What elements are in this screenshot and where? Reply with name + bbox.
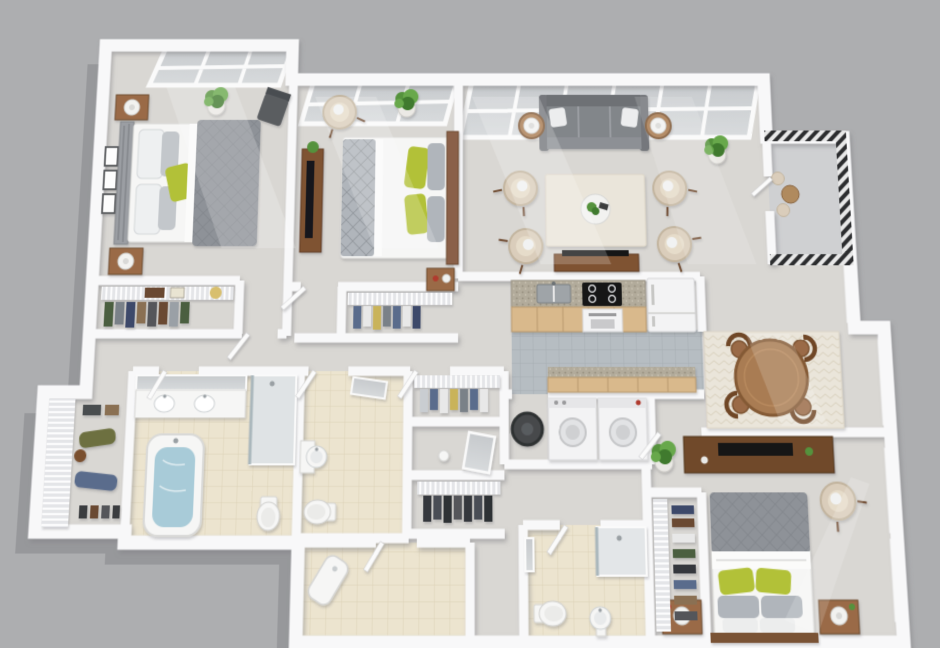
lower-counter bbox=[548, 367, 696, 392]
hanging-clothes bbox=[420, 389, 488, 413]
sink bbox=[537, 282, 571, 303]
nightstand bbox=[115, 95, 149, 120]
table-lamp bbox=[117, 253, 134, 269]
dryer bbox=[598, 398, 648, 460]
tv bbox=[718, 443, 793, 456]
bathtub bbox=[143, 434, 204, 536]
table-lamp bbox=[124, 100, 140, 115]
floor-plan: 3D isometric floor plan render of a thre… bbox=[0, 4, 940, 648]
wire-shelf bbox=[414, 375, 500, 388]
tv-console bbox=[300, 141, 324, 252]
green-pillow bbox=[717, 567, 755, 595]
nightstand bbox=[108, 248, 143, 274]
headboard bbox=[710, 633, 818, 643]
mirror bbox=[525, 538, 533, 571]
scene: 3D isometric floor plan render of a thre… bbox=[0, 0, 940, 648]
bistro-chair bbox=[777, 204, 790, 217]
bistro-table bbox=[781, 185, 799, 203]
closet-bedroom-3 bbox=[653, 499, 698, 632]
floor-plan-render: 3D isometric floor plan render of a thre… bbox=[0, 4, 940, 648]
balcony-railing-bottom bbox=[770, 254, 853, 265]
throw-pillow bbox=[548, 107, 567, 127]
hanging-clothes-dark bbox=[423, 496, 492, 523]
upper-counter bbox=[511, 280, 646, 331]
mirror bbox=[351, 377, 387, 399]
balcony-railing-top bbox=[764, 131, 845, 142]
washer bbox=[548, 398, 597, 460]
wire-shelf bbox=[417, 482, 500, 495]
headboard bbox=[446, 132, 458, 265]
green-pillow bbox=[755, 567, 791, 595]
shower bbox=[250, 375, 297, 464]
bistro-chair bbox=[771, 172, 784, 185]
toilet bbox=[304, 500, 336, 524]
bedside-stand bbox=[427, 268, 455, 290]
wire-shelf bbox=[348, 293, 453, 305]
refrigerator bbox=[647, 278, 696, 331]
dresser-tv bbox=[683, 437, 834, 473]
mirror bbox=[463, 432, 495, 473]
throw-pillow bbox=[620, 107, 638, 127]
toilet bbox=[257, 497, 280, 531]
toilet bbox=[534, 601, 566, 626]
shower bbox=[597, 527, 647, 575]
